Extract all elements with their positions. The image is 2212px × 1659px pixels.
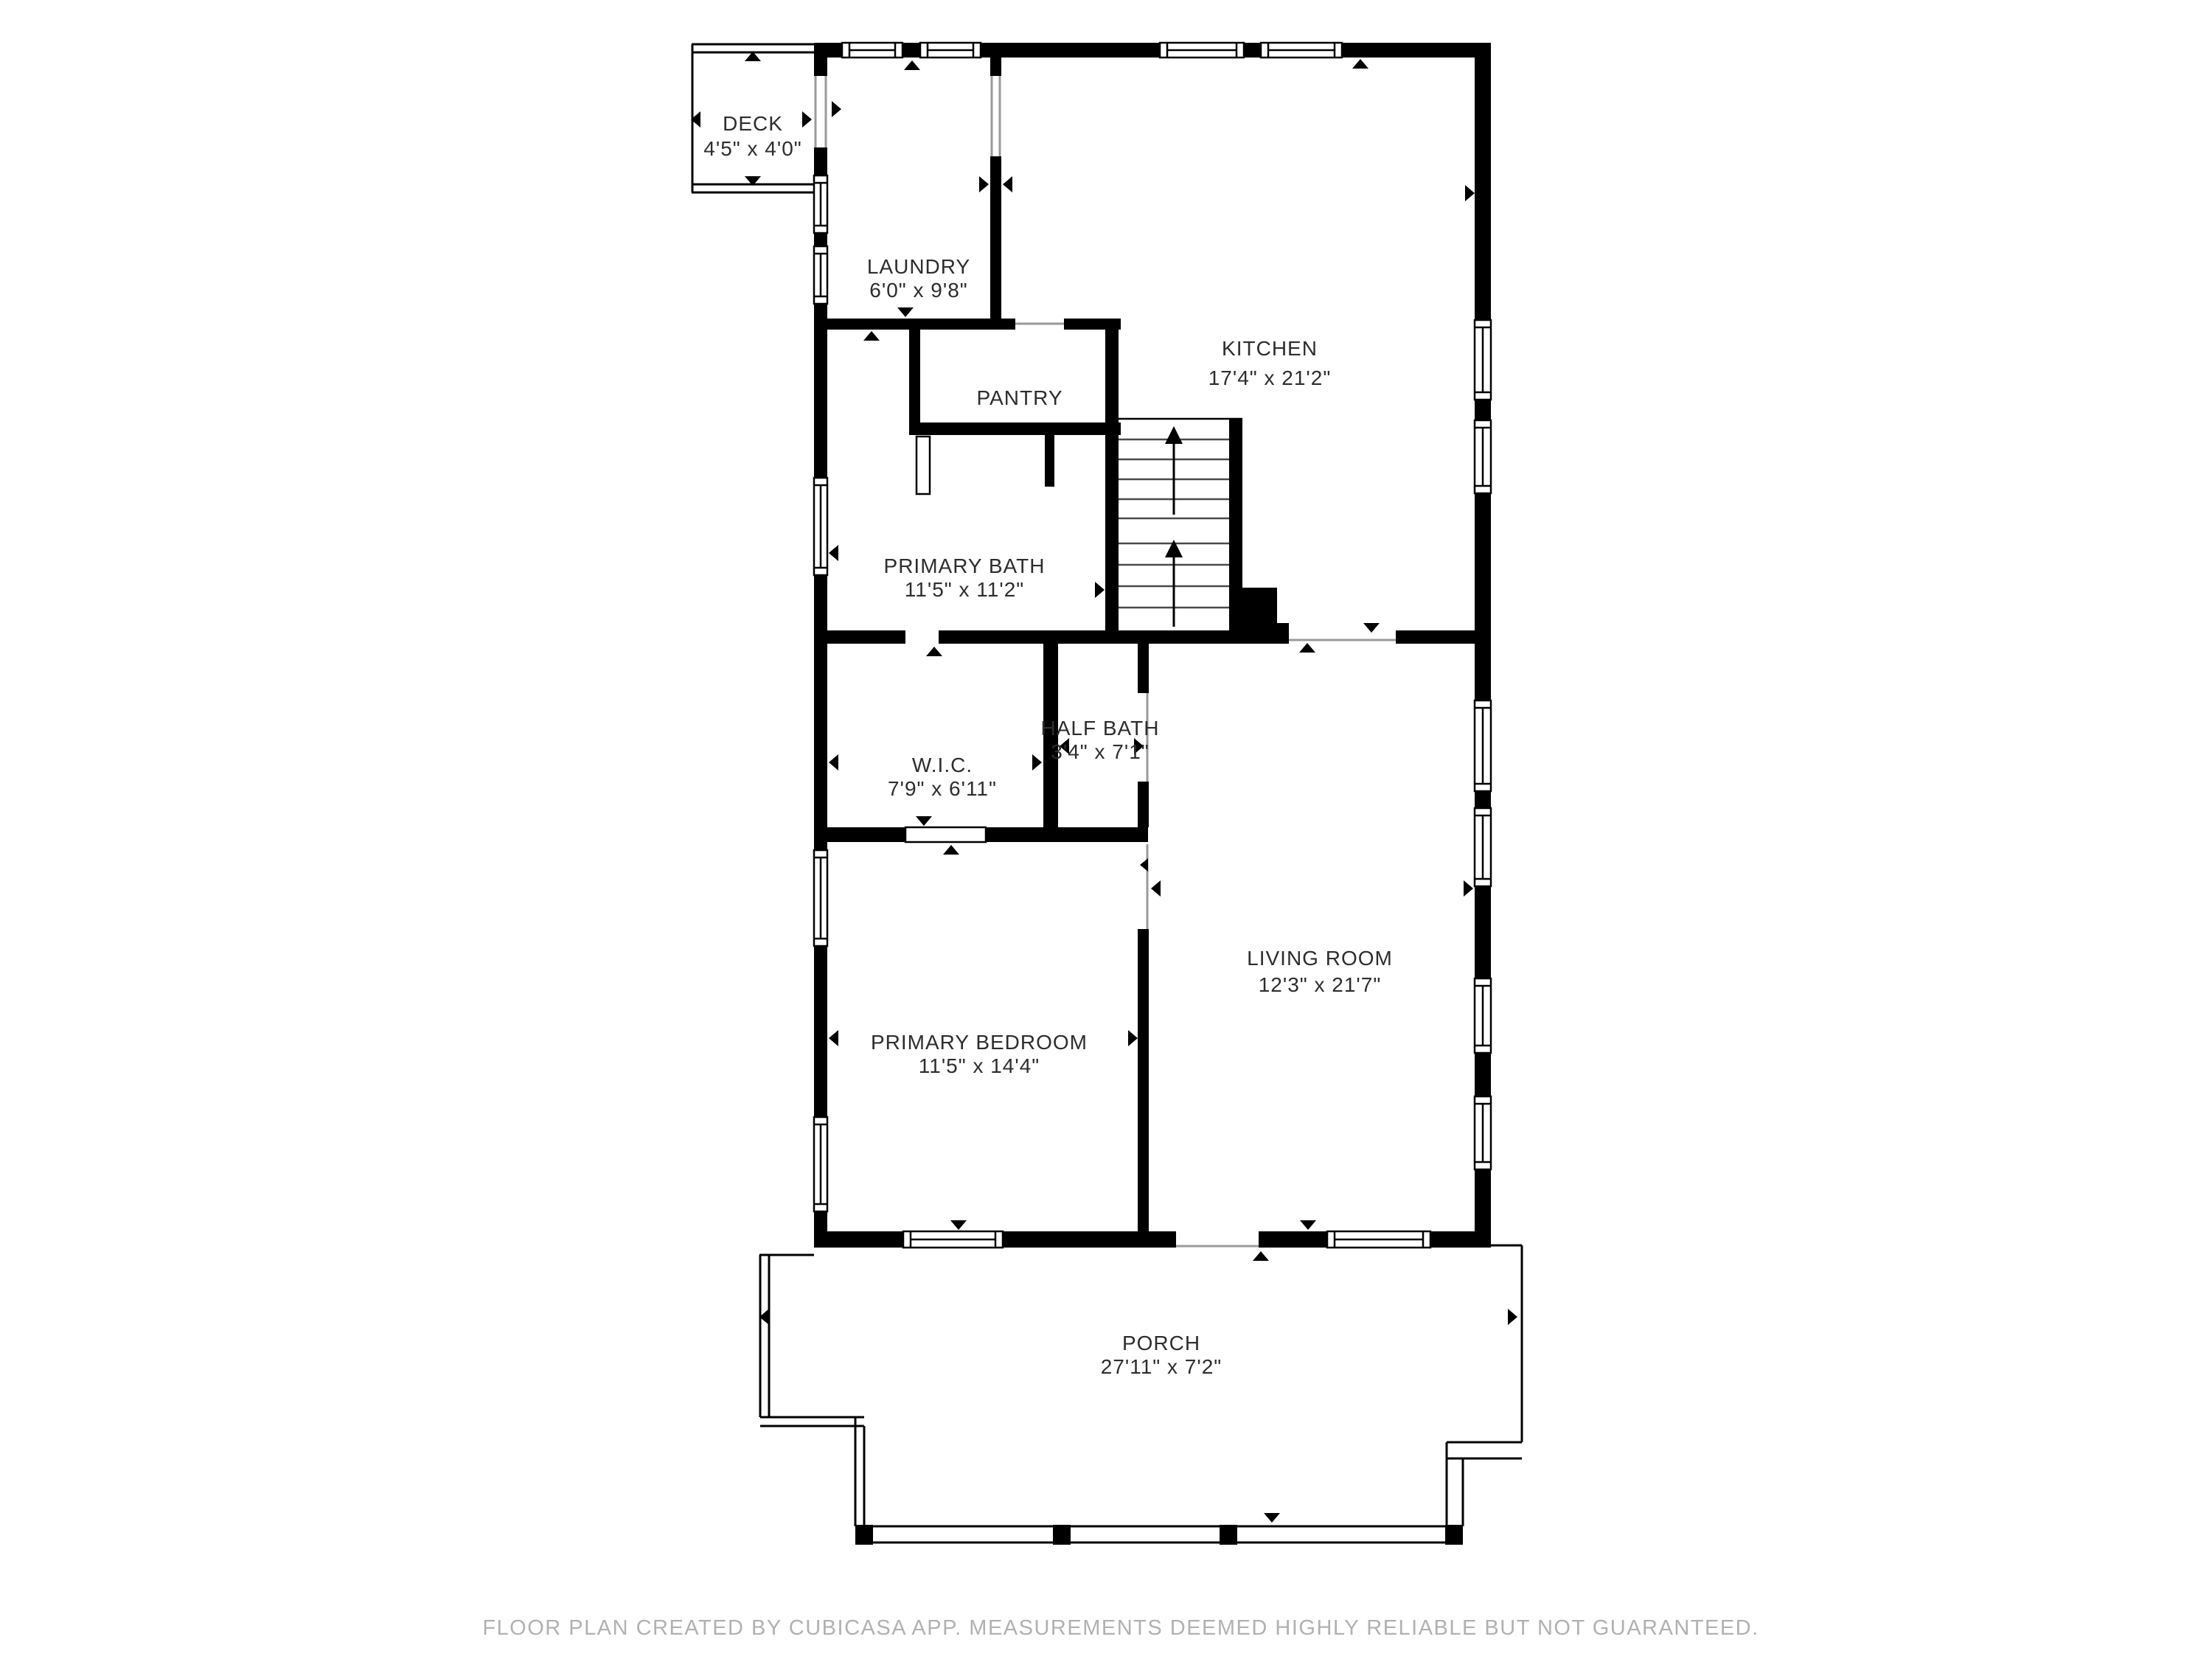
room-dims-wic: 7'9" x 6'11" — [888, 777, 997, 800]
footer-disclaimer: FLOOR PLAN CREATED BY CUBICASA APP. MEAS… — [482, 1616, 1759, 1640]
room-label-wic: W.I.C. — [912, 754, 973, 776]
window-icon — [1261, 43, 1342, 58]
window-icon — [842, 43, 902, 58]
room-dims-laundry: 6'0" x 9'8" — [869, 279, 967, 302]
room-label-half-bath: HALF BATH — [1041, 717, 1160, 740]
window-icon — [1475, 1096, 1491, 1169]
window-icon — [814, 478, 827, 575]
room-dims-primary-bath: 11'5" x 11'2" — [905, 578, 1024, 601]
room-dims-porch: 27'11" x 7'2" — [1101, 1355, 1222, 1378]
window-icon — [1475, 700, 1491, 791]
window-icon — [1475, 320, 1491, 400]
window-icon — [1475, 978, 1491, 1053]
window-icon — [814, 246, 827, 304]
room-dims-living-room: 12'3" x 21'7" — [1259, 973, 1382, 996]
window-icon — [814, 850, 827, 946]
room-label-laundry: LAUNDRY — [867, 255, 970, 278]
pantry-door-leaf-icon — [917, 437, 930, 494]
room-dims-half-bath: 3'4" x 7'1" — [1051, 740, 1149, 763]
window-icon — [1327, 1231, 1430, 1248]
room-label-pantry: PANTRY — [977, 386, 1063, 409]
room-label-primary-bedroom: PRIMARY BEDROOM — [871, 1031, 1088, 1054]
window-icon — [1475, 420, 1491, 493]
room-label-kitchen: KITCHEN — [1222, 337, 1318, 360]
room-dims-kitchen: 17'4" x 21'2" — [1208, 366, 1332, 389]
room-label-porch: PORCH — [1122, 1332, 1200, 1354]
wic-door-panel-icon — [905, 827, 986, 842]
room-dims-primary-bedroom: 11'5" x 14'4" — [919, 1054, 1040, 1077]
window-icon — [1475, 808, 1491, 886]
window-icon — [903, 1231, 1003, 1248]
room-label-living-room: LIVING ROOM — [1247, 947, 1393, 970]
room-label-primary-bath: PRIMARY BATH — [884, 554, 1046, 577]
room-label-deck: DECK — [723, 112, 783, 135]
room-dims-deck: 4'5" x 4'0" — [703, 137, 801, 160]
window-icon — [920, 43, 981, 58]
window-icon — [814, 1117, 827, 1211]
floor-plan: DECK 4'5" x 4'0" LAUNDRY 6'0" x 9'8" KIT… — [0, 0, 2212, 1659]
window-icon — [1160, 43, 1244, 58]
window-icon — [814, 175, 827, 233]
